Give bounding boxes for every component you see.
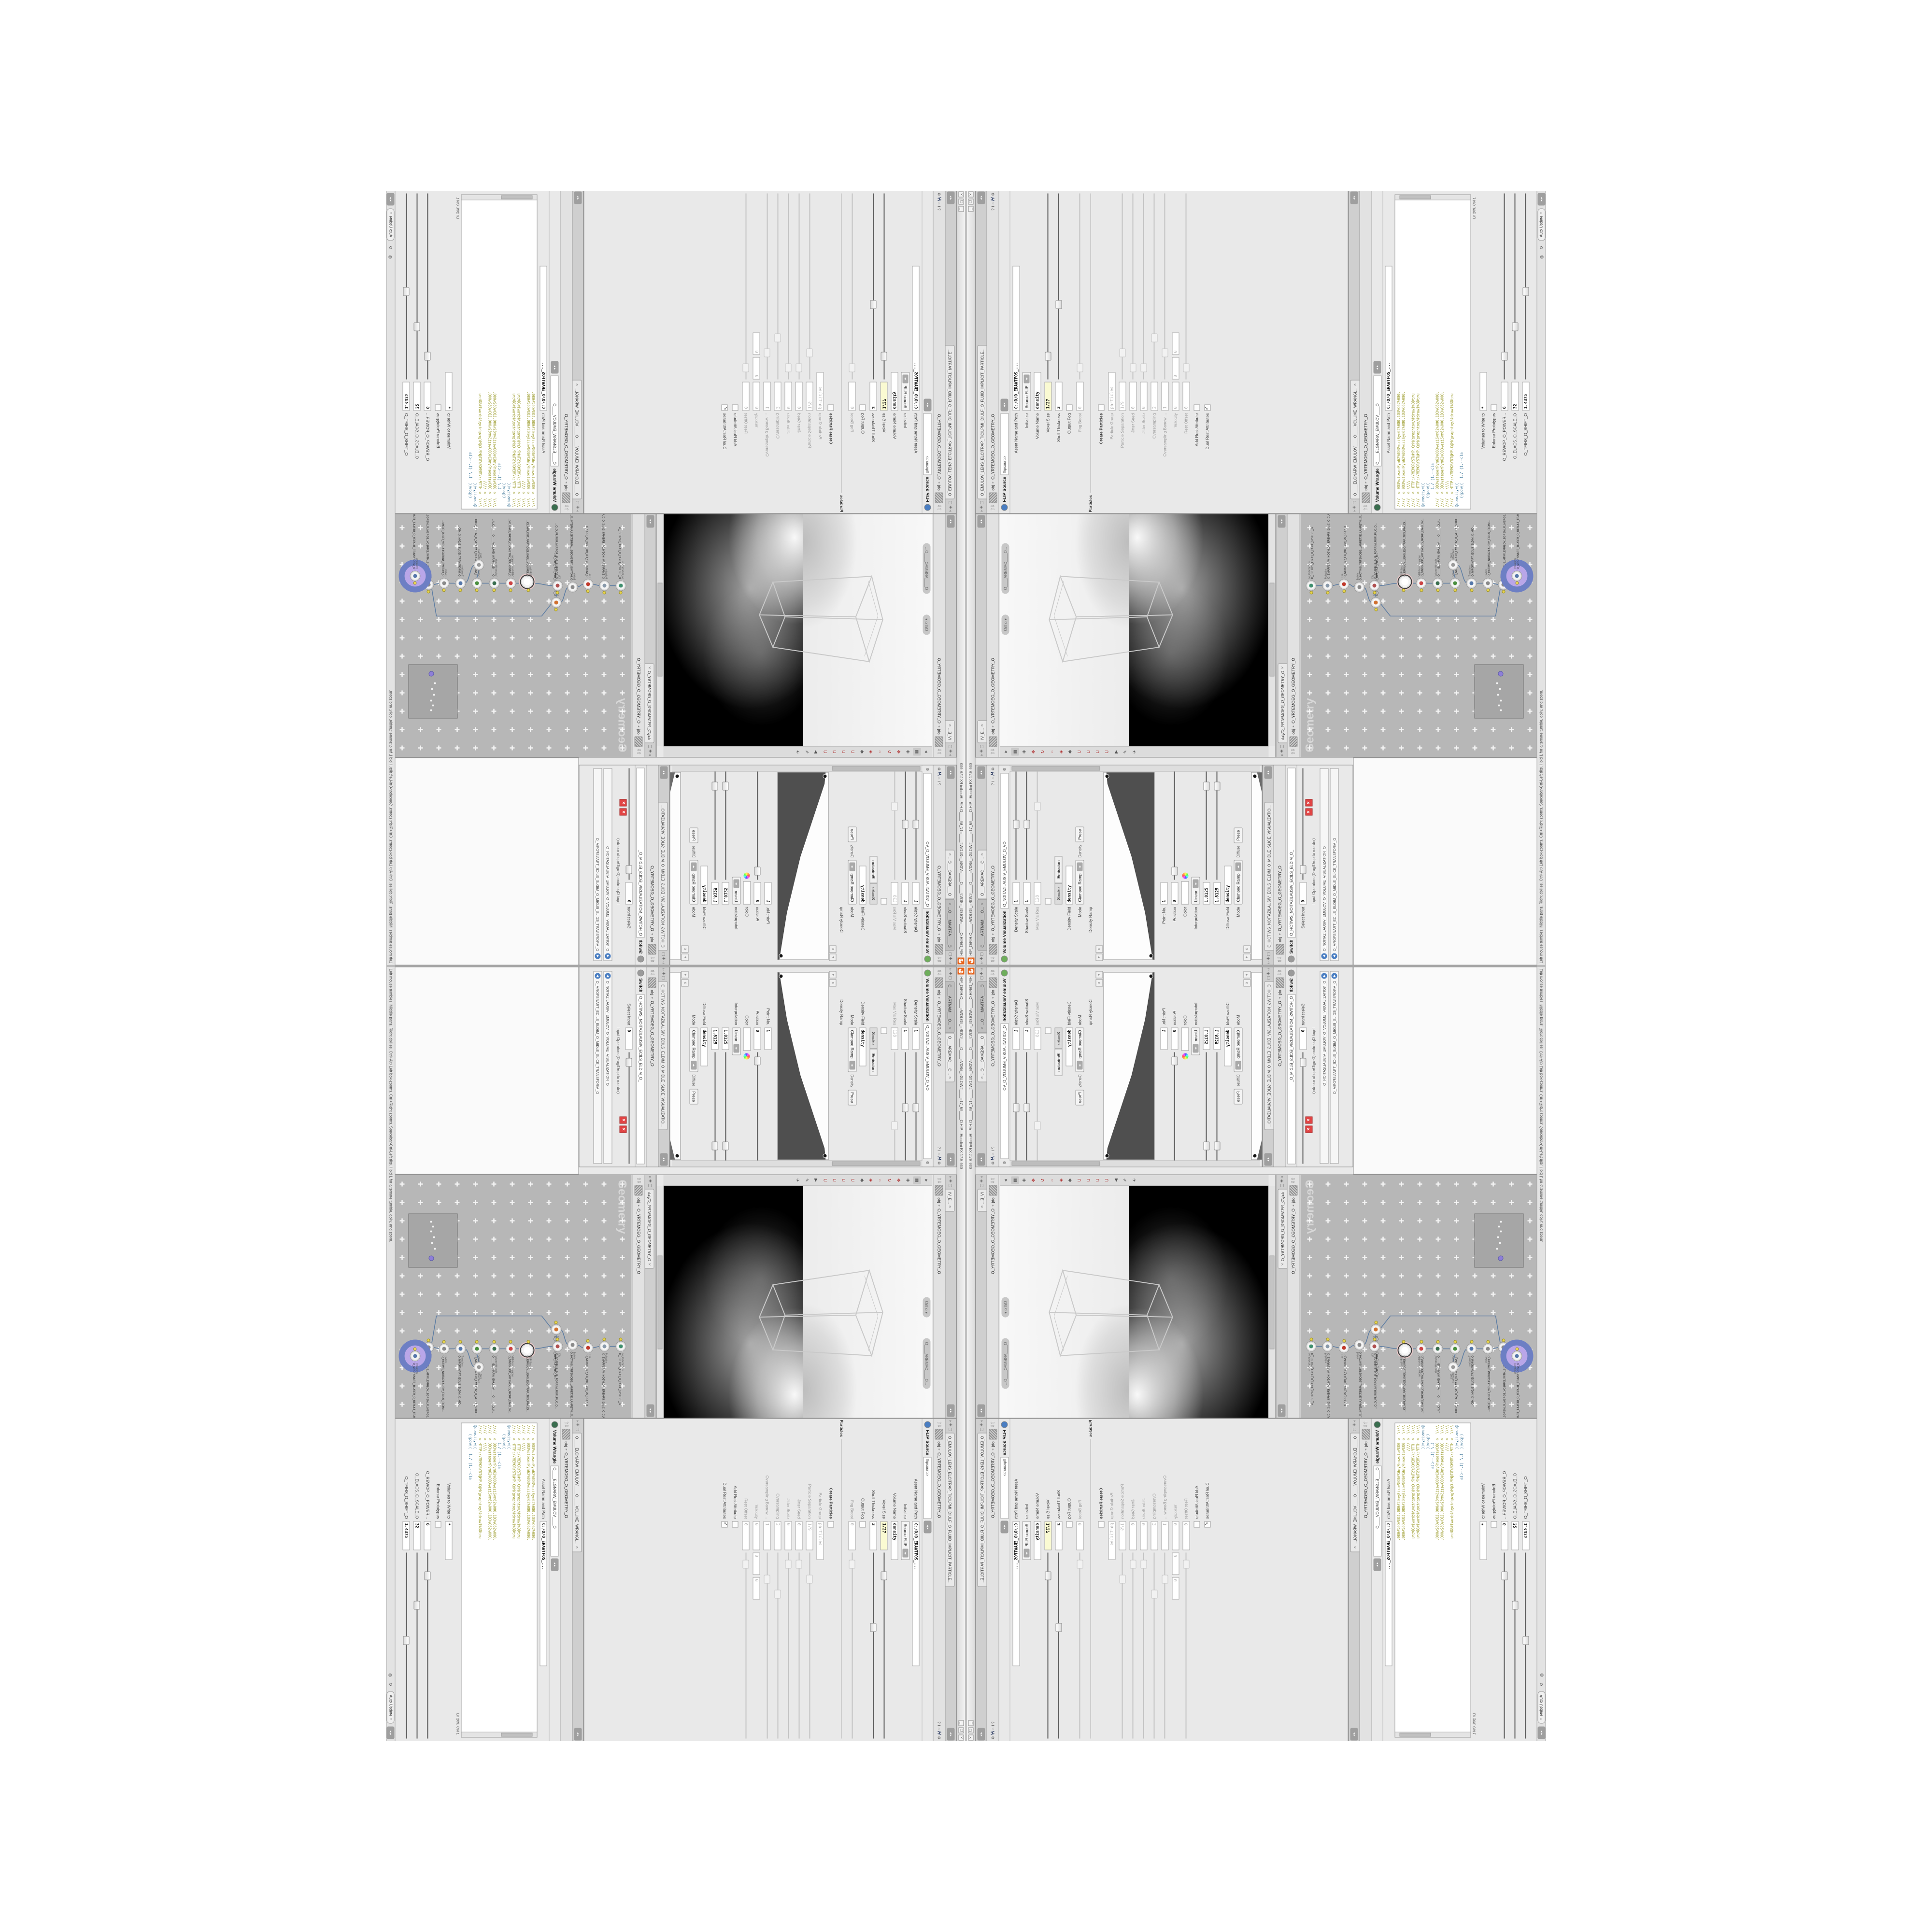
viewport-tool-icon[interactable]: ▦ [1011,1177,1019,1184]
node-name-field[interactable]: O____ELGNARW_EMULOV____O [551,376,559,467]
checkbox[interactable] [1066,405,1072,411]
param-slider[interactable] [743,194,750,380]
value-field[interactable]: C:/O/O_ERAWTFOS_... [1012,1521,1020,1666]
param-slider[interactable] [403,1553,410,1739]
breadcrumb-geometry[interactable]: O_YRTEMOEG_O_GEOMETRY_O [937,1452,942,1518]
pane-menu-icons[interactable]: ▹ ✚ ▢ [1279,1175,1284,1189]
pane-link-toggle[interactable]: ◂ ▸ [978,192,985,204]
node-flag[interactable] [1487,589,1490,592]
viewport-render[interactable]: Ortho ▾ O____AREMAC____O... [664,514,932,746]
value-field[interactable]: 1 [912,882,920,905]
close-button[interactable]: ✕ [959,192,964,198]
viewport-tool-icon[interactable]: ▦ [913,1177,921,1184]
param-slider[interactable] [723,768,729,880]
pane-link-toggle[interactable]: ◂ ▸ [647,1405,654,1417]
pane-menu-icons[interactable]: ▹ ✚ ▢ [979,743,983,757]
network-node[interactable] [521,1344,534,1357]
asset-path-field[interactable]: C:/O/O_ERAWTFOS_... [540,266,547,411]
viewport-scrollbar[interactable] [657,514,664,746]
tab-scene-view[interactable]: IV_E...✕ [978,1189,987,1211]
pane-link-toggle[interactable]: ◂ ▸ [647,515,654,528]
subtabs[interactable]: SmokeEmission [870,1028,878,1076]
param-slider[interactable] [1055,194,1062,380]
vex-code-editor[interactable]: //// ⊙ 0D3%steserPym62%0D3%eziSym62%000.… [1395,195,1471,510]
param-slider[interactable] [1522,1553,1529,1739]
restore-button[interactable]: ❐ [968,1728,974,1733]
value-field[interactable]: 1/27 [881,382,888,411]
breadcrumb-obj[interactable]: obj [937,729,942,734]
value-field[interactable]: 1.8125 [1203,1028,1210,1050]
breadcrumb-obj[interactable]: obj [650,937,655,942]
pane-link-toggle[interactable]: ◂ ▸ [1537,1727,1545,1739]
pane-scrollbar[interactable] [1010,766,1260,772]
history-arrows-icon[interactable]: ⇧⇩ [650,957,655,963]
pane-link-toggle[interactable]: ◂ ▸ [947,767,955,779]
pane-menu-icons[interactable]: ▹ ✚ ▢ [979,951,983,965]
node-name-field[interactable]: flipsource [1000,413,1009,475]
globe-icon[interactable]: ◍ [1538,254,1545,260]
node-flag[interactable] [586,1339,590,1343]
breadcrumb-obj[interactable]: obj [637,1197,641,1203]
camera-pill[interactable]: O____AREMAC____O... [1002,1338,1009,1389]
node-name-field[interactable]: O_HCTIWS_NOITAZILAUSIV_ECILS_ELDIM_O_ [637,768,645,938]
node-name-field[interactable]: O_NOITAZILAUSIV_EMULOV_O_VO [1000,773,1009,909]
node-flag[interactable] [1375,1321,1378,1324]
asset-path-field[interactable]: C:/O/O_ERAWTFOS_... [540,1521,547,1666]
history-arrows-icon[interactable]: ⇧⇩ [990,969,995,976]
pane-menu-icons[interactable]: ▹ ✚ ▢ [1352,1419,1356,1433]
pane-scrollbar[interactable] [1010,1161,1260,1166]
history-arrows-icon[interactable]: ⇧⇩ [990,749,995,755]
viewport-tool-icon[interactable]: U [1103,748,1111,756]
value-field[interactable]: 0 [1076,1521,1083,1550]
tab-switch[interactable]: O_HCTIWS_NOITAZILAUSIV_ECILS_ELDIM_O_MID… [659,981,668,1130]
globe-icon[interactable]: ◍ [387,254,394,260]
value-field[interactable]: 0 [1172,333,1179,355]
tab-switch[interactable]: O_HCTIWS_NOITAZILAUSIV_ECILS_ELDIM_O_MID… [1264,802,1274,951]
pane-link-toggle[interactable]: ◂ ▸ [574,192,582,204]
value-field[interactable]: 32 [1511,1521,1519,1550]
value-field[interactable]: 0 [1172,1521,1179,1550]
network-node[interactable] [600,1342,610,1351]
value-field[interactable]: 1.8125 [722,1028,729,1050]
pane-menu-icons[interactable]: ▹ ✚ ▢ [648,743,653,757]
reorder-icon[interactable]: ◀ [1332,953,1337,959]
param-slider[interactable] [754,1052,761,1164]
pane-link-toggle[interactable]: ◂ ▸ [1350,1728,1358,1741]
camera-pill[interactable]: O____AREMAC____O... [923,1338,931,1389]
pane-scrollbar[interactable] [672,1161,923,1166]
value-field[interactable]: * [445,1521,453,1560]
network-node[interactable] [1450,1344,1460,1354]
network-canvas[interactable]: Geometry ae_CubeSphereO_EREHPS_EBUC_O_CU… [395,1175,632,1418]
network-node[interactable] [456,1344,466,1354]
param-slider[interactable] [1045,1553,1051,1739]
checkbox[interactable] [881,898,887,905]
param-slider[interactable] [1512,194,1519,380]
node-flag[interactable] [1310,1338,1313,1341]
breadcrumb-obj[interactable]: obj [1291,729,1296,734]
ramp-widget[interactable] [670,772,681,960]
value-field[interactable]: 128 [891,1028,898,1050]
delete-input-button[interactable]: ✕ [620,809,627,816]
network-node[interactable] [440,1344,449,1354]
history-arrows-icon[interactable]: ⇧⇩ [990,505,995,511]
breadcrumb-geometry[interactable]: O_YRTEMOEG_O_GEOMETRY_O [937,1208,942,1274]
close-button[interactable]: ✕ [968,1735,974,1741]
pane-link-toggle[interactable]: ◂ ▸ [947,192,955,204]
minimize-button[interactable]: ▁ [968,206,974,212]
node-name-field[interactable]: flipsource [1000,1457,1009,1519]
node-flag[interactable] [442,1340,446,1344]
value-field[interactable]: density [1224,1028,1231,1066]
param-slider[interactable] [913,1052,920,1164]
viewport-tool-icon[interactable]: ▶ [1112,1177,1120,1184]
presets-button[interactable]: Prese [1234,1089,1243,1104]
pane-menu-icons[interactable]: ▹ ✚ ▢ [576,1419,580,1433]
dropdown[interactable]: Linear◂▸ [732,1028,741,1055]
node-flag[interactable] [1326,1338,1330,1341]
value-field[interactable]: density [1224,866,1231,905]
network-node[interactable] [552,598,561,608]
history-arrows-icon[interactable]: ⇧⇩ [564,505,569,511]
history-arrows-icon[interactable]: ⇧⇩ [937,969,942,976]
param-slider[interactable] [807,194,813,380]
param-slider[interactable] [1214,1052,1221,1164]
pane-link-toggle[interactable]: ◂ ▸ [978,1728,985,1741]
breadcrumb-obj[interactable]: obj [991,729,995,734]
viewport-tool-icon[interactable]: ✱ [1066,1177,1074,1184]
color-swatch[interactable] [743,881,751,905]
pane-menu-icons[interactable]: ▹ ✚ ▢ [979,967,983,981]
node-flag[interactable] [586,590,590,593]
pane-link-toggle[interactable]: ◂ ▸ [947,1728,955,1741]
param-slider[interactable] [1162,1553,1168,1739]
value-field[interactable]: particles [817,1521,824,1560]
ortho-pill[interactable]: Ortho ▾ [1002,1297,1009,1318]
network-canvas[interactable]: Geometry ae_CubeSphereO_EREHPS_EBUC_O_CU… [1301,1175,1537,1418]
checkbox[interactable] [828,1521,834,1528]
param-slider[interactable] [626,768,633,880]
param-slider[interactable] [403,194,410,380]
network-node[interactable] [440,579,449,588]
history-arrows-icon[interactable]: ⇧⇩ [937,1421,942,1427]
param-slider[interactable] [870,1553,877,1739]
node-flag[interactable] [427,1339,430,1342]
value-field[interactable]: 1 [1161,1521,1168,1550]
node-flag[interactable] [1454,1340,1457,1344]
close-button[interactable]: ✕ [968,192,974,198]
param-slider[interactable] [1203,768,1210,880]
breadcrumb-geometry[interactable]: O_YRTEMOEG_O_GEOMETRY_O [1278,1001,1282,1066]
value-field[interactable]: 0 [753,333,760,355]
node-flag[interactable] [1454,589,1457,592]
viewport-tool-icon[interactable]: ➤ [923,1177,930,1184]
pane-menu-icons[interactable]: ▹ ✚ ▢ [1266,967,1270,981]
history-arrows-icon[interactable]: ⇧⇩ [1291,1177,1296,1183]
param-slider[interactable] [1300,768,1307,880]
pane-link-toggle[interactable]: ◂ ▸ [947,1405,955,1417]
value-field[interactable]: 1.8125 [1213,882,1221,905]
ortho-pill[interactable]: Ortho ▾ [923,614,931,635]
viewport-tool-icon[interactable]: U [1094,748,1102,756]
pane-menu-icons[interactable]: ▹ ✚ ▢ [949,743,953,757]
node-name-field[interactable]: O____ELGNARW_EMULOV____O [551,1465,559,1556]
node-flag[interactable] [509,589,512,592]
delete-input-button[interactable]: ✕ [1306,1126,1313,1133]
vex-code-editor[interactable]: //// ⊙ 0D3%steserPym62%0D3%eziSym62%000.… [461,195,538,510]
refresh-icon[interactable]: ⟳ [1538,1681,1545,1688]
value-field[interactable]: 0 [1172,382,1179,411]
param-slider[interactable] [785,1553,792,1739]
value-field[interactable]: 0 [753,1577,760,1600]
value-field[interactable]: density [1034,1521,1041,1560]
param-slider[interactable] [807,1553,813,1739]
param-slider[interactable] [414,1553,421,1739]
viewport-tool-icon[interactable]: U [1076,1177,1083,1184]
value-field[interactable]: 1/9 [1119,1521,1126,1550]
value-field[interactable]: 0 [742,1521,750,1550]
node-flag[interactable] [1402,1340,1406,1344]
network-node[interactable] [1433,1344,1443,1354]
viewport-tool-icon[interactable]: ✚ [1021,1177,1028,1184]
tab-scene-view[interactable]: IV_E...✕ [946,1189,955,1211]
network-node[interactable] [553,1342,563,1351]
value-field[interactable]: 0 [742,382,750,411]
value-field[interactable]: 1/27 [1044,1521,1051,1550]
node-name-field[interactable]: O_NOITAZILAUSIV_EMULOV_O_VO [923,1023,932,1159]
history-arrows-icon[interactable]: ⇧⇩ [990,957,995,963]
network-node[interactable] [1371,1325,1381,1335]
breadcrumb-geometry[interactable]: O_YRTEMOEG_O_GEOMETRY_O [637,658,641,724]
pane-menu-icons[interactable]: ▹ ✚ ▢ [949,951,953,965]
value-field[interactable]: 0 [753,382,760,411]
value-field[interactable]: particles [1108,1521,1115,1560]
network-minimap[interactable] [409,665,458,719]
node-flag[interactable] [442,589,446,592]
history-arrows-icon[interactable]: ⇧⇩ [1277,957,1282,963]
param-slider[interactable] [1183,1553,1190,1739]
value-field[interactable]: density [1034,372,1041,411]
value-field[interactable]: 1.8125 [711,882,719,905]
node-flag[interactable] [1343,590,1346,593]
value-field[interactable]: 1/9 [1119,382,1126,411]
param-slider[interactable] [1522,194,1529,380]
network-node[interactable] [1417,1344,1426,1354]
pane-link-toggle[interactable]: ◂ ▸ [387,193,395,206]
delete-input-button[interactable]: ✕ [1306,1117,1313,1124]
param-slider[interactable] [849,1553,856,1739]
color-swatch[interactable] [1181,1028,1189,1051]
value-field[interactable]: 128 [1034,882,1041,905]
checkbox[interactable] [1204,1521,1210,1528]
node-flag[interactable] [1516,582,1519,585]
value-field[interactable]: 3 [1055,1521,1062,1550]
value-field[interactable]: 6 [424,1521,431,1550]
value-field[interactable]: * [1479,372,1487,411]
globe-icon[interactable]: ◍ [1538,1672,1545,1678]
network-node[interactable] [1483,1344,1493,1354]
pane-link-toggle[interactable]: ◂ ▸ [1537,193,1545,206]
breadcrumb-geometry[interactable]: O_YRTEMOEG_O_GEOMETRY_O [564,1452,569,1518]
param-slider[interactable] [796,1553,803,1739]
breadcrumb-geometry[interactable]: O_YRTEMOEG_O_GEOMETRY_O [991,1452,995,1518]
breadcrumb-geometry[interactable]: O_YRTEMOEG_O_GEOMETRY_O [1291,658,1296,724]
breadcrumb-obj[interactable]: obj [1278,990,1282,995]
param-slider[interactable] [712,768,719,880]
pane-link-toggle[interactable]: ◂ ▸ [1278,1405,1286,1417]
breadcrumb-geometry[interactable]: O_YRTEMOEG_O_GEOMETRY_O [991,414,995,480]
value-field[interactable]: particles [1108,372,1115,411]
dropdown[interactable]: Clamped Ramp◂▸ [1234,860,1243,904]
pane-menu-icons[interactable]: ▹ ✚ ▢ [949,499,953,513]
param-slider[interactable] [1023,1052,1030,1164]
value-field[interactable]: 0 [1172,357,1179,380]
param-slider[interactable] [1119,194,1126,380]
network-node[interactable] [583,580,593,589]
value-field[interactable]: 1/9 [806,382,813,411]
network-node[interactable] [616,1342,626,1351]
pane-scrollbar[interactable] [672,766,923,772]
pane-menu-icons[interactable]: ▹ ✚ ▢ [979,1419,983,1433]
viewport-tool-icon[interactable]: ▶ [812,1177,820,1184]
tab-network[interactable]: /obj/O_YRTEMOEG_O_GEOMETRY_O✕ [645,663,654,743]
pane-link-toggle[interactable]: ◂ ▸ [1264,767,1272,779]
breadcrumb-geometry[interactable]: O_YRTEMOEG_O_GEOMETRY_O [937,866,942,931]
tab-flip-source[interactable]: O_EMULOV_LEHS_ELCITRAP_TICILPMI_DIULF_O_… [978,1433,987,1587]
history-arrows-icon[interactable]: ⇧⇩ [636,1177,641,1183]
color-wheel-icon[interactable] [1182,1053,1188,1060]
dropdown[interactable]: Source FLIP◂▸ [901,372,910,411]
param-slider[interactable] [902,768,909,880]
network-node[interactable] [1433,579,1443,588]
viewport-render[interactable]: Ortho ▾ O____AREMAC____O... [664,1186,932,1418]
viewport-tool-icon[interactable]: ✎ [803,1177,811,1184]
param-slider[interactable] [870,194,877,380]
tab-camera[interactable]: O___AREMAC___O...✕ [946,850,955,899]
checkbox[interactable] [860,405,866,411]
value-field[interactable]: 1 [1160,882,1167,905]
node-flag[interactable] [1402,589,1406,592]
refresh-icon[interactable]: ⟳ [387,244,394,251]
gear-icon[interactable]: ⚙ [1002,1161,1007,1164]
dropdown[interactable]: Source FLIP◂▸ [901,1521,910,1560]
value-field[interactable]: 0 [796,382,803,411]
node-name-field[interactable]: O____ELGNARW_EMULOV____O [1373,1465,1381,1556]
pane-link-toggle[interactable]: ◂ ▸ [1278,515,1286,528]
breadcrumb-geometry[interactable]: O_YRTEMOEG_O_GEOMETRY_O [937,1001,942,1066]
pane-link-toggle[interactable]: ◂ ▸ [551,1558,559,1571]
node-flag[interactable] [1470,1340,1474,1344]
node-flag[interactable] [1470,589,1474,592]
pane-link-toggle[interactable]: ◂ ▸ [660,1153,668,1166]
viewport-tool-icon[interactable]: ✱ [1066,748,1074,756]
history-arrows-icon[interactable]: ⇧⇩ [937,1177,942,1183]
param-slider[interactable] [892,1052,898,1164]
viewport-tool-icon[interactable]: ✚ [904,748,912,756]
presets-button[interactable]: Prese [1076,1090,1084,1105]
value-field[interactable]: 1 [765,1028,772,1050]
checkbox[interactable] [1204,405,1210,411]
color-wheel-icon[interactable] [744,1053,750,1060]
node-flag[interactable] [1375,608,1378,611]
value-field[interactable]: 1 [1023,882,1030,905]
node-name-field[interactable]: flipsource [923,413,932,475]
value-field[interactable]: 1 [764,382,771,411]
viewport-tool-icon[interactable]: ✎ [803,748,811,756]
viewport-tool-icon[interactable]: ➤ [1002,748,1010,756]
param-slider[interactable] [1023,768,1030,880]
network-node[interactable] [1355,582,1364,592]
node-flag[interactable] [475,1340,479,1344]
node-flag[interactable] [554,1321,558,1324]
param-slider[interactable] [1119,1553,1126,1739]
history-arrows-icon[interactable]: ⇧⇩ [937,957,942,963]
tab-flip-source[interactable]: O_EMULOV_LEHS_ELCITRAP_TICILPMI_DIULF_O_… [946,345,955,499]
value-field[interactable]: 32 [413,1521,421,1550]
code-scrollbar[interactable] [1395,195,1471,200]
viewport-tool-icon[interactable]: ➤ [923,748,930,756]
param-slider[interactable] [849,194,856,380]
history-arrows-icon[interactable]: ⇧⇩ [650,969,655,976]
ortho-pill[interactable]: Ortho ▾ [1002,614,1009,635]
node-name-field[interactable]: O_HCTIWS_NOITAZILAUSIV_ECILS_ELDIM_O_ [637,994,645,1165]
pane-menu-icons[interactable]: ▹ ✚ ▢ [949,967,953,981]
value-field[interactable]: 3 [870,382,877,411]
breadcrumb-geometry[interactable]: O_YRTEMOEG_O_GEOMETRY_O [650,1001,655,1066]
param-slider[interactable] [1171,768,1178,880]
pane-link-toggle[interactable]: ◂ ▸ [947,515,955,528]
param-slider[interactable] [425,194,431,380]
tab-scene-view[interactable]: IV_E...✕ [946,721,955,743]
restore-button[interactable]: ❐ [959,1728,964,1733]
history-arrows-icon[interactable]: ⇧⇩ [1277,969,1282,976]
viewport-scrollbar[interactable] [1268,514,1276,746]
code-scrollbar[interactable] [1395,1732,1471,1737]
node-flag[interactable] [413,1348,417,1351]
value-field[interactable]: 0 [1129,1521,1136,1550]
breadcrumb-obj[interactable]: obj [937,990,942,995]
pane-header-icons[interactable]: ?i◌H⚙ [937,1721,942,1739]
network-node[interactable] [1370,1342,1379,1351]
network-canvas[interactable]: Geometry ae_CubeSphereO_EREHPS_EBUC_O_CU… [1301,514,1537,757]
node-flag[interactable] [493,589,496,592]
checkbox[interactable] [1045,898,1051,905]
viewport-tool-icon[interactable]: ⇔ [877,1177,884,1184]
value-field[interactable]: 1 [912,1028,920,1050]
value-field[interactable]: 1 [1023,1028,1030,1050]
dropdown[interactable]: Source FLIP◂▸ [1023,1521,1031,1560]
node-flag[interactable] [1373,1338,1377,1341]
minimize-button[interactable]: ▁ [968,1720,974,1726]
value-field[interactable]: 0 [1172,1577,1179,1600]
network-canvas[interactable]: Geometry ae_CubeSphereO_EREHPS_EBUC_O_CU… [395,514,632,757]
breadcrumb-obj[interactable]: obj [937,1441,942,1447]
viewport-tool-icon[interactable]: ◈ [867,748,875,756]
network-node[interactable] [456,579,466,588]
pane-menu-icons[interactable]: ▹ ✚ ▢ [662,967,666,981]
viewport-scrollbar[interactable] [1268,1186,1276,1418]
value-field[interactable]: * [1479,1521,1487,1560]
value-field[interactable]: 1 [902,1028,909,1050]
breadcrumb-geometry[interactable]: O_YRTEMOEG_O_GEOMETRY_O [937,658,942,724]
value-field[interactable]: 0 [754,1028,761,1050]
value-field[interactable]: 1 [1161,382,1168,411]
viewport-tool-icon[interactable]: U [1085,1177,1093,1184]
checkbox[interactable] [435,1521,441,1528]
viewport-tool-icon[interactable]: ↻ [1039,1177,1047,1184]
param-slider[interactable] [913,768,920,880]
